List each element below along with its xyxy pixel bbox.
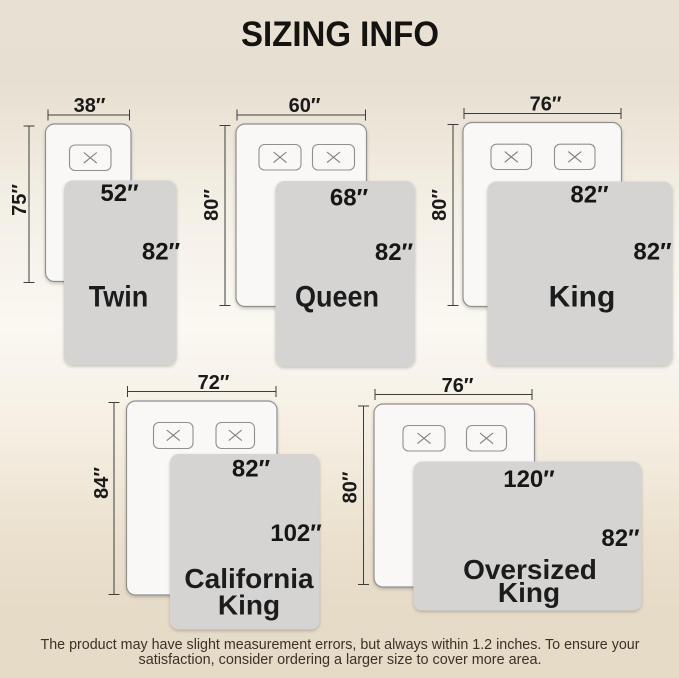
svg-text:80″: 80″ [340, 471, 362, 503]
svg-text:52″: 52″ [100, 180, 139, 207]
svg-text:82″: 82″ [142, 239, 181, 266]
svg-text:satisfaction, consider orderin: satisfaction, consider ordering a larger… [139, 651, 542, 668]
svg-text:King: King [549, 281, 616, 314]
svg-text:84″: 84″ [91, 467, 113, 499]
svg-text:75″: 75″ [9, 184, 31, 216]
svg-text:120″: 120″ [503, 466, 555, 493]
svg-text:82″: 82″ [375, 239, 414, 266]
svg-text:76″: 76″ [530, 94, 562, 116]
svg-text:Twin: Twin [89, 281, 149, 314]
svg-text:82″: 82″ [232, 456, 271, 483]
svg-text:72″: 72″ [198, 372, 230, 394]
svg-text:King: King [218, 590, 280, 621]
svg-text:68″: 68″ [330, 185, 369, 212]
svg-text:Queen: Queen [295, 281, 379, 314]
svg-text:38″: 38″ [74, 95, 106, 117]
svg-text:76″: 76″ [442, 375, 474, 397]
svg-text:King: King [498, 577, 560, 608]
svg-text:60″: 60″ [289, 95, 321, 117]
svg-text:80″: 80″ [429, 189, 451, 221]
svg-text:82″: 82″ [570, 182, 609, 209]
svg-text:82″: 82″ [633, 239, 672, 266]
svg-text:82″: 82″ [601, 525, 640, 552]
svg-text:102″: 102″ [270, 520, 322, 547]
svg-text:80″: 80″ [201, 189, 223, 221]
svg-text:SIZING INFO: SIZING INFO [241, 15, 439, 54]
